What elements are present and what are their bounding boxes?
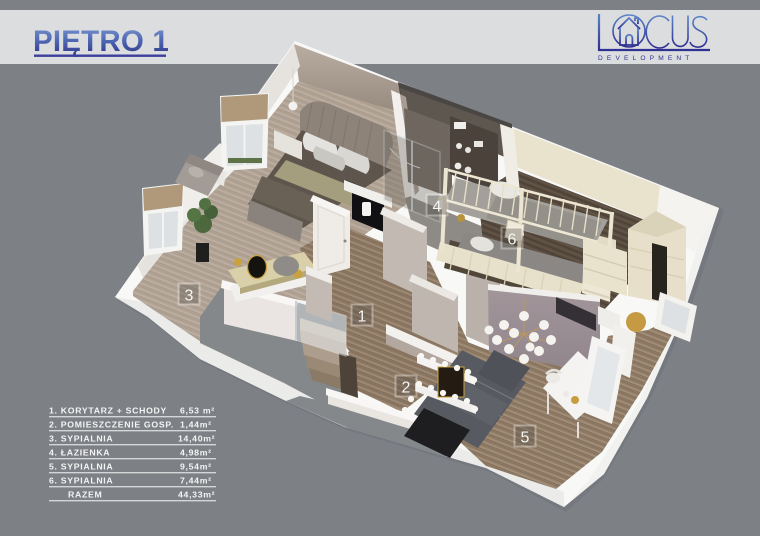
svg-text:4: 4 <box>433 199 442 216</box>
svg-text:2. POMIESZCZENIE GOSP.: 2. POMIESZCZENIE GOSP. <box>49 420 174 430</box>
svg-text:1. KORYTARZ + SCHODY: 1. KORYTARZ + SCHODY <box>49 406 167 416</box>
svg-text:6,53 m²: 6,53 m² <box>180 406 215 416</box>
svg-text:14,40m²: 14,40m² <box>178 434 215 444</box>
svg-text:DEVELOPMENT: DEVELOPMENT <box>598 55 693 62</box>
svg-text:RAZEM: RAZEM <box>68 490 102 500</box>
svg-text:7,44m²: 7,44m² <box>180 476 212 486</box>
svg-text:1,44m²: 1,44m² <box>180 420 212 430</box>
svg-text:6: 6 <box>508 232 517 249</box>
svg-text:2: 2 <box>402 380 411 397</box>
svg-text:6. SYPIALNIA: 6. SYPIALNIA <box>49 476 113 486</box>
svg-text:5. SYPIALNIA: 5. SYPIALNIA <box>49 462 113 472</box>
svg-text:3. SYPIALNIA: 3. SYPIALNIA <box>49 434 113 444</box>
svg-text:3: 3 <box>185 288 194 305</box>
svg-text:PIĘTRO 1: PIĘTRO 1 <box>33 25 169 58</box>
svg-text:5: 5 <box>521 430 530 447</box>
svg-text:4,98m²: 4,98m² <box>180 448 212 458</box>
svg-text:4. ŁAZIENKA: 4. ŁAZIENKA <box>49 448 110 458</box>
svg-text:44,33m²: 44,33m² <box>178 490 215 500</box>
svg-text:1: 1 <box>358 309 367 326</box>
svg-text:9,54m²: 9,54m² <box>180 462 212 472</box>
